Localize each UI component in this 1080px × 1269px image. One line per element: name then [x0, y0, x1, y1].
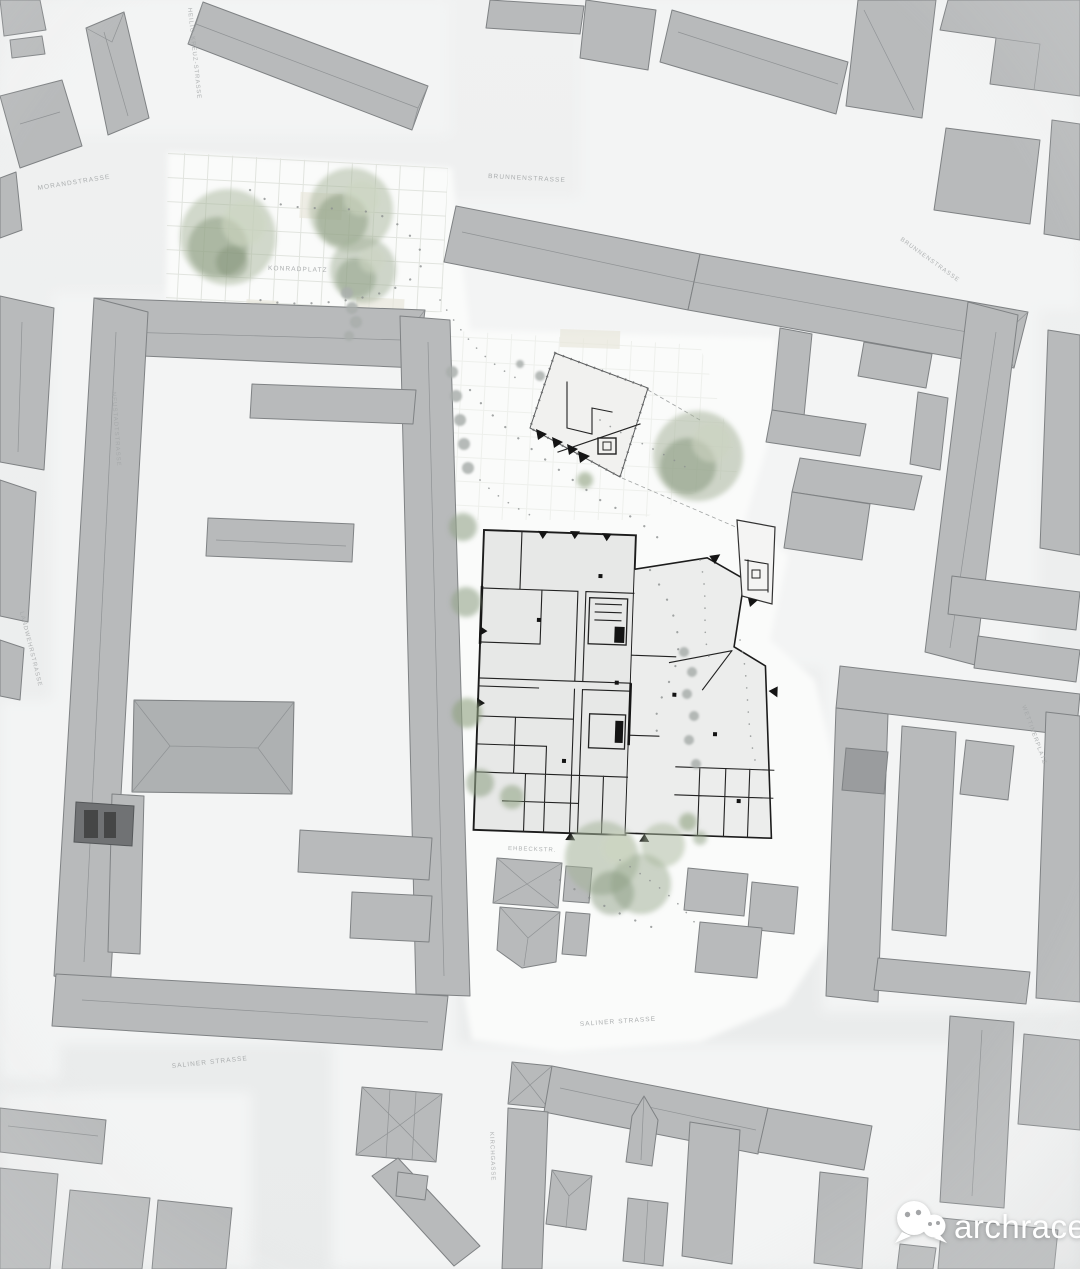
site-plan-drawing: BRUNNENSTRASSE BRUNNENSTRASSE MORANDSTRA… — [0, 0, 1080, 1269]
vignette-overlay — [0, 0, 1080, 1269]
site-plan-screenshot: BRUNNENSTRASSE BRUNNENSTRASSE MORANDSTRA… — [0, 0, 1080, 1269]
archrace-wordmark: archrace — [954, 1208, 1080, 1245]
